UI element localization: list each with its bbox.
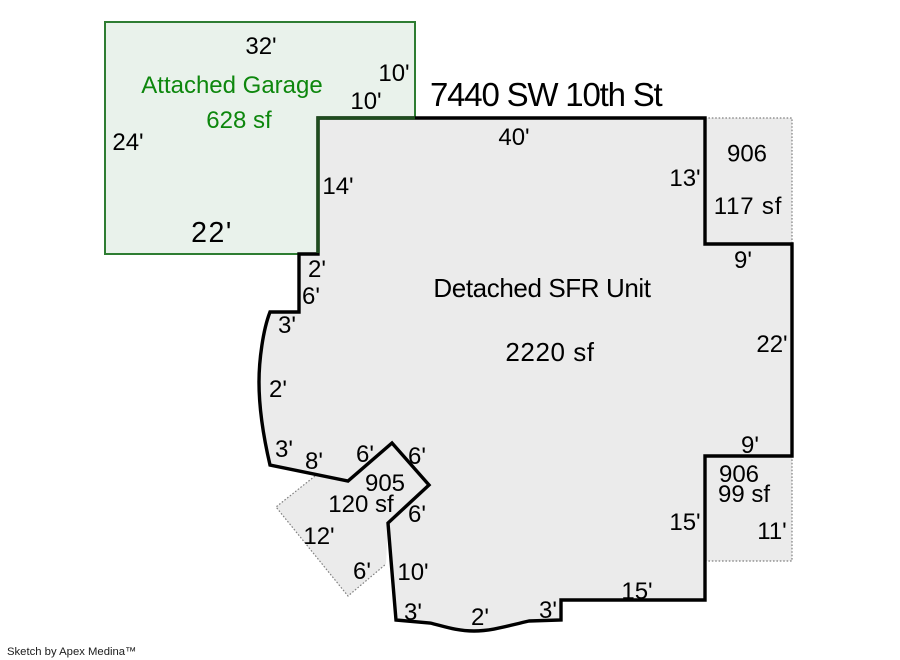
svg-text:2': 2'	[269, 376, 287, 403]
svg-text:9': 9'	[734, 247, 752, 274]
svg-text:10': 10'	[378, 60, 409, 87]
svg-text:628 sf: 628 sf	[206, 107, 272, 134]
svg-text:11': 11'	[757, 518, 787, 545]
svg-text:15': 15'	[621, 578, 652, 605]
svg-text:7440 SW 10th St: 7440 SW 10th St	[430, 76, 663, 113]
svg-text:9': 9'	[741, 432, 759, 459]
svg-text:22': 22'	[756, 331, 787, 358]
svg-text:6': 6'	[408, 501, 426, 528]
svg-text:6': 6'	[353, 558, 371, 585]
svg-text:6': 6'	[408, 443, 426, 470]
svg-text:12': 12'	[303, 523, 334, 550]
svg-text:906: 906	[727, 141, 767, 168]
svg-text:24': 24'	[112, 129, 143, 156]
svg-text:Attached Garage: Attached Garage	[141, 72, 322, 99]
svg-text:3': 3'	[278, 312, 296, 339]
svg-text:Sketch by Apex Medina™: Sketch by Apex Medina™	[7, 646, 136, 658]
svg-text:3': 3'	[404, 599, 422, 626]
svg-text:2': 2'	[308, 256, 326, 283]
svg-text:2': 2'	[471, 604, 489, 631]
svg-text:32': 32'	[245, 33, 276, 60]
svg-text:15': 15'	[669, 509, 700, 536]
svg-text:3': 3'	[275, 436, 293, 463]
svg-text:14': 14'	[322, 173, 353, 200]
svg-text:13': 13'	[669, 165, 700, 192]
svg-text:905: 905	[365, 470, 405, 497]
svg-text:10': 10'	[350, 88, 381, 115]
svg-text:8': 8'	[305, 448, 323, 475]
svg-text:99 sf: 99 sf	[718, 481, 770, 508]
svg-text:6': 6'	[356, 441, 374, 468]
svg-text:2220 sf: 2220 sf	[505, 337, 594, 367]
svg-text:3': 3'	[539, 597, 557, 624]
svg-text:10': 10'	[397, 559, 428, 586]
svg-text:40': 40'	[498, 124, 529, 151]
svg-text:22': 22'	[191, 217, 233, 249]
svg-text:6': 6'	[302, 283, 320, 310]
svg-text:Detached SFR Unit: Detached SFR Unit	[433, 273, 651, 303]
svg-text:117 sf: 117 sf	[714, 193, 782, 220]
